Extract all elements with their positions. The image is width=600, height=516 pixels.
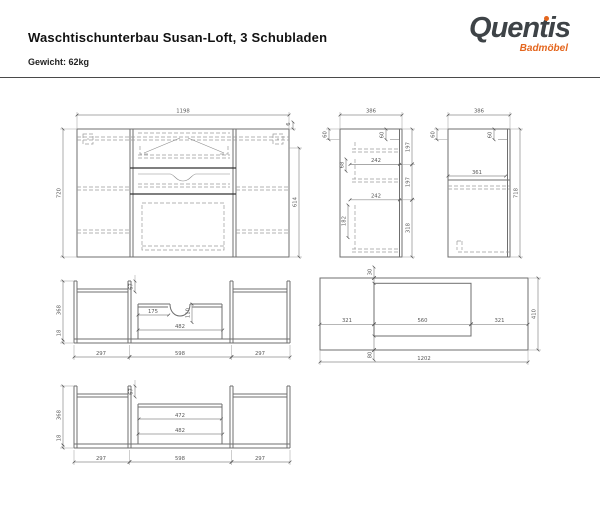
dim-section-top-inner: 60 <box>380 131 386 138</box>
plan-lower-drawer-drawing: 67 368 18 472 482 297 598 297 <box>52 372 316 476</box>
dim-plantop-right: 297 <box>255 351 265 357</box>
dim-worktop-width: 1202 <box>417 356 430 362</box>
page-title: Waschtischunterbau Susan-Loft, 3 Schubla… <box>28 30 327 45</box>
dim-planbot-inner-width: 482 <box>175 428 185 434</box>
dim-front-height: 720 <box>57 187 63 198</box>
dim-worktop-back-gap: 80 <box>368 351 374 358</box>
plan-lower-dimensions: 67 368 18 472 482 297 598 297 <box>57 380 291 465</box>
dim-planbot-right: 297 <box>255 456 265 462</box>
dim-section-top-offset: 60 <box>323 131 329 138</box>
plan-top-dimensions: 67 368 18 175 110 482 297 598 297 <box>57 275 291 360</box>
dim-section-seg3: 318 <box>406 222 412 233</box>
plan-top-drawer-drawing: 67 368 18 175 110 482 297 598 297 <box>52 267 316 371</box>
brand-subtitle: Badmöbel <box>448 43 570 54</box>
side-outline <box>448 129 510 257</box>
dim-plantop-notch-left: 175 <box>148 309 158 315</box>
dim-worktop-depth: 410 <box>532 308 538 319</box>
plan-lower-drawer-box <box>138 404 222 444</box>
brand-name: Quentis <box>448 14 570 43</box>
side-dimensions: 386 60 60 361 718 <box>431 109 524 258</box>
dim-plantop-inner-width: 482 <box>175 324 185 330</box>
dim-section-seg2: 197 <box>406 177 412 187</box>
dim-planbot-depth: 368 <box>57 409 63 420</box>
dim-section-front1: 68 <box>340 161 346 168</box>
side-view-drawing: 386 60 60 361 718 <box>420 102 536 268</box>
dim-side-width: 386 <box>474 109 485 115</box>
worktop-plan-drawing: 30 321 560 321 80 410 1202 <box>296 264 568 374</box>
spec-sheet-page: { "header": { "title": "Waschtischunterb… <box>0 0 600 516</box>
dim-worktop-front-gap: 30 <box>368 268 374 275</box>
logo-dot-icon <box>544 16 549 21</box>
dim-plantop-depth: 368 <box>57 304 63 315</box>
dim-side-top-offset: 60 <box>431 131 437 138</box>
dim-planbot-front: 67 <box>129 388 135 395</box>
section-dimensions: 386 60 60 197 197 318 242 242 68 182 <box>323 109 416 258</box>
dim-side-height: 718 <box>514 187 520 198</box>
worktop-outline <box>320 278 528 350</box>
dim-plantop-center: 598 <box>175 351 186 357</box>
dim-plantop-notch-depth: 110 <box>186 307 192 318</box>
side-hidden-details <box>448 140 510 252</box>
dim-section-front2: 182 <box>342 216 348 226</box>
dim-front-inner-height: 614 <box>293 196 299 207</box>
front-hidden-details <box>77 133 289 250</box>
dim-worktop-right: 321 <box>494 318 504 324</box>
side-section-drawing: 386 60 60 197 197 318 242 242 68 182 <box>310 102 422 268</box>
dim-section-depth1: 242 <box>371 158 381 164</box>
brand-logo: Quentis Badmöbel <box>448 14 570 54</box>
plan-top-carcass <box>74 281 290 343</box>
front-dimensions: 1198 720 614 6 <box>57 109 303 258</box>
dim-worktop-cutout: 560 <box>417 318 428 324</box>
front-cabinet-outline <box>77 129 289 257</box>
dim-plantop-back: 18 <box>57 329 63 336</box>
dim-worktop-left: 321 <box>342 318 352 324</box>
dim-front-width: 1198 <box>176 109 190 115</box>
dim-plantop-front: 67 <box>129 283 135 290</box>
header-divider <box>0 77 600 78</box>
weight-label: Gewicht: 62kg <box>28 57 89 67</box>
dim-planbot-inner-top: 472 <box>175 413 185 419</box>
dim-planbot-back: 18 <box>57 434 63 441</box>
dim-side-top-inner: 60 <box>488 131 494 138</box>
dim-side-shelf: 361 <box>472 170 482 176</box>
dim-planbot-center: 598 <box>175 456 186 462</box>
front-view-drawing: 1198 720 614 6 <box>52 102 310 268</box>
dim-plantop-left: 297 <box>96 351 106 357</box>
dim-section-depth2: 242 <box>371 194 381 200</box>
dim-section-width: 386 <box>366 109 377 115</box>
dim-planbot-left: 297 <box>96 456 106 462</box>
dim-section-seg1: 197 <box>406 142 412 152</box>
